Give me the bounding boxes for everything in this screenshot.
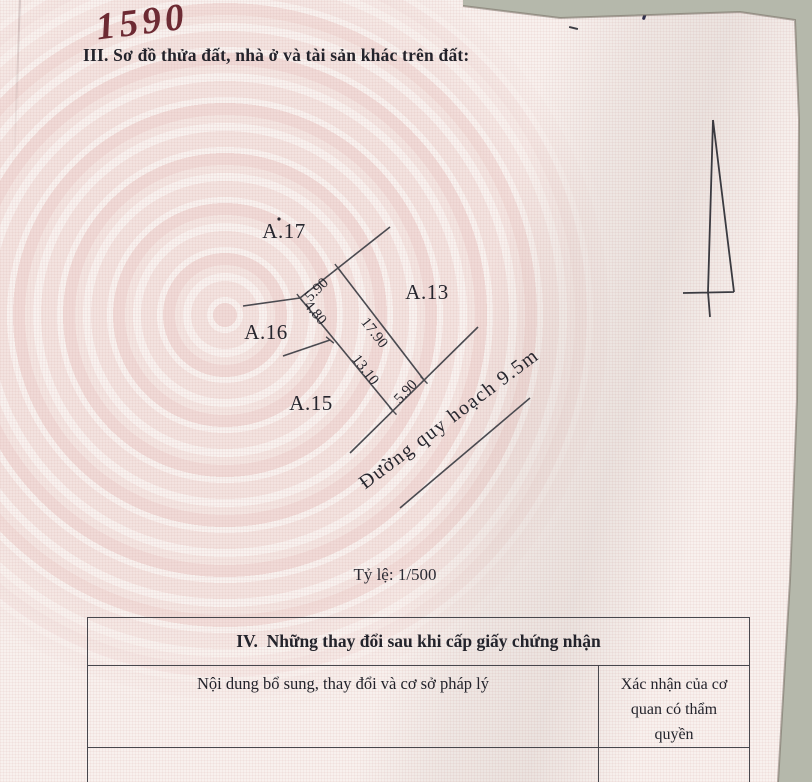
measurement-top-edge: 5.90: [302, 275, 332, 305]
plot-label-a13: A.13: [405, 280, 448, 304]
measurement-left-upper: 4.80: [300, 298, 329, 328]
certificate-page: 1590 III. Sơ đồ thửa đất, nhà ở và tài s…: [0, 0, 812, 782]
scale-label: Tỷ lệ: 1/500: [320, 565, 470, 585]
road-label: Đường quy hoạch 9.5m: [355, 344, 543, 493]
plot-label-a17: A.17: [262, 219, 305, 243]
boundary-a16-a15: [283, 340, 330, 356]
measurement-left-lower: 13.10: [348, 352, 381, 388]
table-empty-cell-right: [598, 748, 749, 782]
north-arrow-icon: [683, 120, 734, 317]
table-header-confirmation: Xác nhận của cơ quan có thẩm quyền: [598, 666, 749, 747]
measurement-right-edge: 17.90: [357, 315, 390, 351]
section-iv-title: IV. Những thay đổi sau khi cấp giấy chứn…: [88, 618, 749, 666]
boundary-a16-a17: [243, 298, 300, 306]
table-header-row: Nội dung bổ sung, thay đổi và cơ sở pháp…: [88, 666, 749, 748]
table-empty-row: [88, 748, 749, 782]
table-header-content: Nội dung bổ sung, thay đổi và cơ sở pháp…: [88, 666, 598, 747]
section-iv-table: IV. Những thay đổi sau khi cấp giấy chứn…: [87, 617, 750, 782]
edge-measurements: 5.90 4.80 17.90 13.10 5.90: [300, 275, 420, 407]
plot-label-a15: A.15: [289, 391, 332, 415]
measurement-bottom-edge: 5.90: [391, 377, 421, 407]
table-empty-cell-left: [88, 748, 598, 782]
plot-label-a16: A.16: [244, 320, 287, 344]
